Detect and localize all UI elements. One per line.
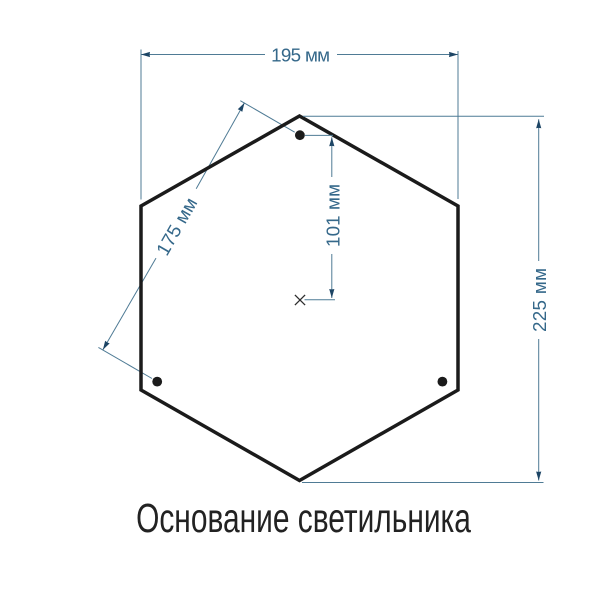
svg-text:195 мм: 195 мм — [271, 44, 330, 65]
svg-text:Основание светильника: Основание светильника — [136, 495, 471, 541]
svg-text:225 мм: 225 мм — [529, 268, 550, 332]
svg-text:101 мм: 101 мм — [322, 184, 343, 247]
